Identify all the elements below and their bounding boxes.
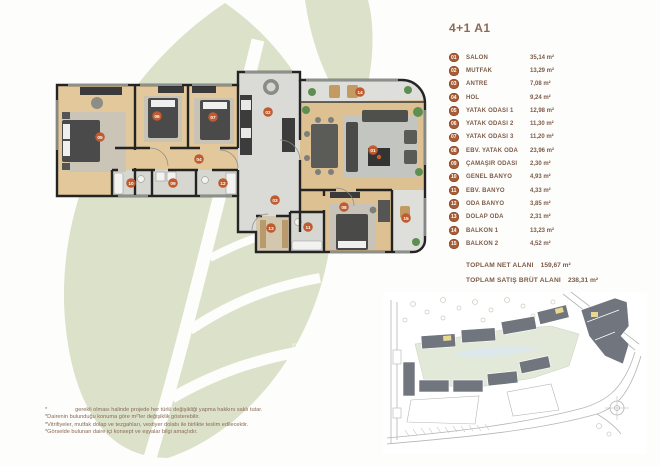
room-label: ÇAMAŞIR ODASI: [466, 161, 530, 167]
room-number-badge: 06: [449, 119, 459, 129]
legend-row: 01SALON35,14 m²: [449, 51, 639, 64]
total-net-label: TOPLAM NET ALANI: [466, 262, 534, 269]
room-number-badge: 05: [449, 106, 459, 116]
room-area: 11,20 m²: [530, 134, 639, 140]
room-label: ANTRE: [466, 81, 530, 87]
room-area: 3,85 m²: [530, 201, 639, 207]
legend-row: 09ÇAMAŞIR ODASI2,30 m²: [449, 157, 639, 170]
svg-text:12: 12: [220, 181, 226, 187]
room-area: 2,31 m²: [530, 214, 639, 220]
total-gross-value: 238,31 m²: [568, 277, 598, 284]
total-net-row: TOPLAM NET ALANI 159,67 m²: [466, 258, 660, 273]
apartment-type-title: 4+1 A1: [449, 21, 491, 35]
marker-05: 05: [95, 132, 105, 142]
room-number-badge: 11: [449, 186, 459, 196]
svg-text:01: 01: [370, 148, 376, 154]
room-legend: 01SALON35,14 m² 02MUTFAK13,29 m² 03ANTRE…: [449, 51, 639, 250]
legend-row: 02MUTFAK13,29 m²: [449, 64, 639, 77]
marker-06: 06: [152, 111, 162, 121]
legend-row: 08EBV. YATAK ODA23,96 m²: [449, 144, 639, 157]
legend-row: 12ODA BANYO3,85 m²: [449, 197, 639, 210]
legend-row: 03ANTRE7,08 m²: [449, 78, 639, 91]
svg-text:09: 09: [170, 181, 176, 187]
room-label: GENEL BANYO: [466, 174, 530, 180]
room-label: YATAK ODASI 3: [466, 134, 530, 140]
room-number-badge: 08: [449, 146, 459, 156]
marker-13: 13: [266, 223, 276, 233]
room-label: BALKON 2: [466, 241, 530, 247]
room-area: 35,14 m²: [530, 55, 639, 61]
svg-text:10: 10: [128, 181, 134, 187]
total-gross-label: TOPLAM SATIŞ BRÜT ALANI: [466, 277, 561, 284]
marker-09: 09: [168, 178, 178, 188]
room-area: 11,30 m²: [530, 121, 639, 127]
legend-row: 05YATAK ODASI 112,98 m²: [449, 104, 639, 117]
brochure-page: 01 02 03 04 05 06 07 08 09 10 11 12 13 1…: [0, 0, 660, 466]
svg-text:15: 15: [403, 216, 409, 222]
marker-01: 01: [368, 145, 378, 155]
legend-row: 14BALKON 113,23 m²: [449, 224, 639, 237]
legend-row: 10GENEL BANYO4,93 m²: [449, 171, 639, 184]
room-area: 2,30 m²: [530, 161, 639, 167]
room-label: YATAK ODASI 1: [466, 108, 530, 114]
room-label: MUTFAK: [466, 68, 530, 74]
room-label: HOL: [466, 95, 530, 101]
svg-text:05: 05: [97, 135, 103, 141]
legend-row: 04HOL9,24 m²: [449, 91, 639, 104]
marker-14: 14: [355, 87, 365, 97]
room-label: BALKON 1: [466, 228, 530, 234]
svg-text:13: 13: [268, 226, 274, 232]
room-number-badge: 04: [449, 93, 459, 103]
marker-15: 15: [401, 213, 411, 223]
room-number-badge: 02: [449, 66, 459, 76]
room-label: ODA BANYO: [466, 201, 530, 207]
site-plan: [383, 292, 647, 454]
svg-text:14: 14: [357, 90, 363, 96]
marker-10: 10: [126, 178, 136, 188]
marker-03: 03: [270, 195, 280, 205]
disclaimer-footnotes: * gerekli olması halinde projede her tür…: [45, 407, 375, 437]
room-number-badge: 15: [449, 239, 459, 249]
room-number-badge: 09: [449, 159, 459, 169]
marker-07: 07: [208, 112, 218, 122]
footnote-line: *Vitrifiyeler, mutfak dolap ve tezgahlar…: [45, 422, 375, 429]
total-gross-row: TOPLAM SATIŞ BRÜT ALANI 238,31 m²: [466, 273, 660, 288]
room-number-badge: 07: [449, 133, 459, 143]
area-totals: TOPLAM NET ALANI 159,67 m² TOPLAM SATIŞ …: [466, 258, 660, 288]
room-number-badge: 12: [449, 199, 459, 209]
room-area: 7,08 m²: [530, 81, 639, 87]
marker-08: 08: [339, 202, 349, 212]
legend-row: 13DOLAP ODA2,31 m²: [449, 211, 639, 224]
room-label: SALON: [466, 55, 530, 61]
room-area: 23,96 m²: [530, 148, 639, 154]
legend-row: 06YATAK ODASI 211,30 m²: [449, 117, 639, 130]
svg-text:04: 04: [196, 157, 202, 163]
marker-12: 12: [218, 178, 228, 188]
room-number-badge: 13: [449, 212, 459, 222]
room-area: 9,24 m²: [530, 95, 639, 101]
footnote-line: *Görselde bulunan daire içi konsept ve e…: [45, 429, 375, 436]
marker-04: 04: [194, 154, 204, 164]
svg-text:06: 06: [154, 114, 160, 120]
total-net-value: 159,67 m²: [541, 262, 571, 269]
room-area: 4,52 m²: [530, 241, 639, 247]
room-label: EBV. BANYO: [466, 188, 530, 194]
room-number-badge: 14: [449, 226, 459, 236]
room-number-badge: 10: [449, 173, 459, 183]
room-area: 13,23 m²: [530, 228, 639, 234]
room-label: EBV. YATAK ODA: [466, 148, 530, 154]
room-label: YATAK ODASI 2: [466, 121, 530, 127]
room-number-badge: 01: [449, 53, 459, 63]
marker-11: 11: [303, 222, 313, 232]
svg-text:11: 11: [305, 225, 310, 231]
legend-row: 07YATAK ODASI 311,20 m²: [449, 131, 639, 144]
room-area: 4,33 m²: [530, 188, 639, 194]
room-number-badge: 03: [449, 79, 459, 89]
room-area: 4,93 m²: [530, 174, 639, 180]
svg-text:07: 07: [210, 115, 216, 121]
svg-text:02: 02: [265, 110, 271, 116]
svg-text:03: 03: [272, 198, 278, 204]
footnote-line: *Dairenin bulunduğu konuma göre m²'ler d…: [45, 414, 375, 421]
room-area: 13,29 m²: [530, 68, 639, 74]
room-label: DOLAP ODA: [466, 214, 530, 220]
legend-row: 15BALKON 24,52 m²: [449, 237, 639, 250]
marker-02: 02: [263, 107, 273, 117]
svg-text:08: 08: [341, 205, 347, 211]
room-area: 12,98 m²: [530, 108, 639, 114]
footnote-line: * gerekli olması halinde projede her tür…: [45, 407, 375, 414]
legend-row: 11EBV. BANYO4,33 m²: [449, 184, 639, 197]
